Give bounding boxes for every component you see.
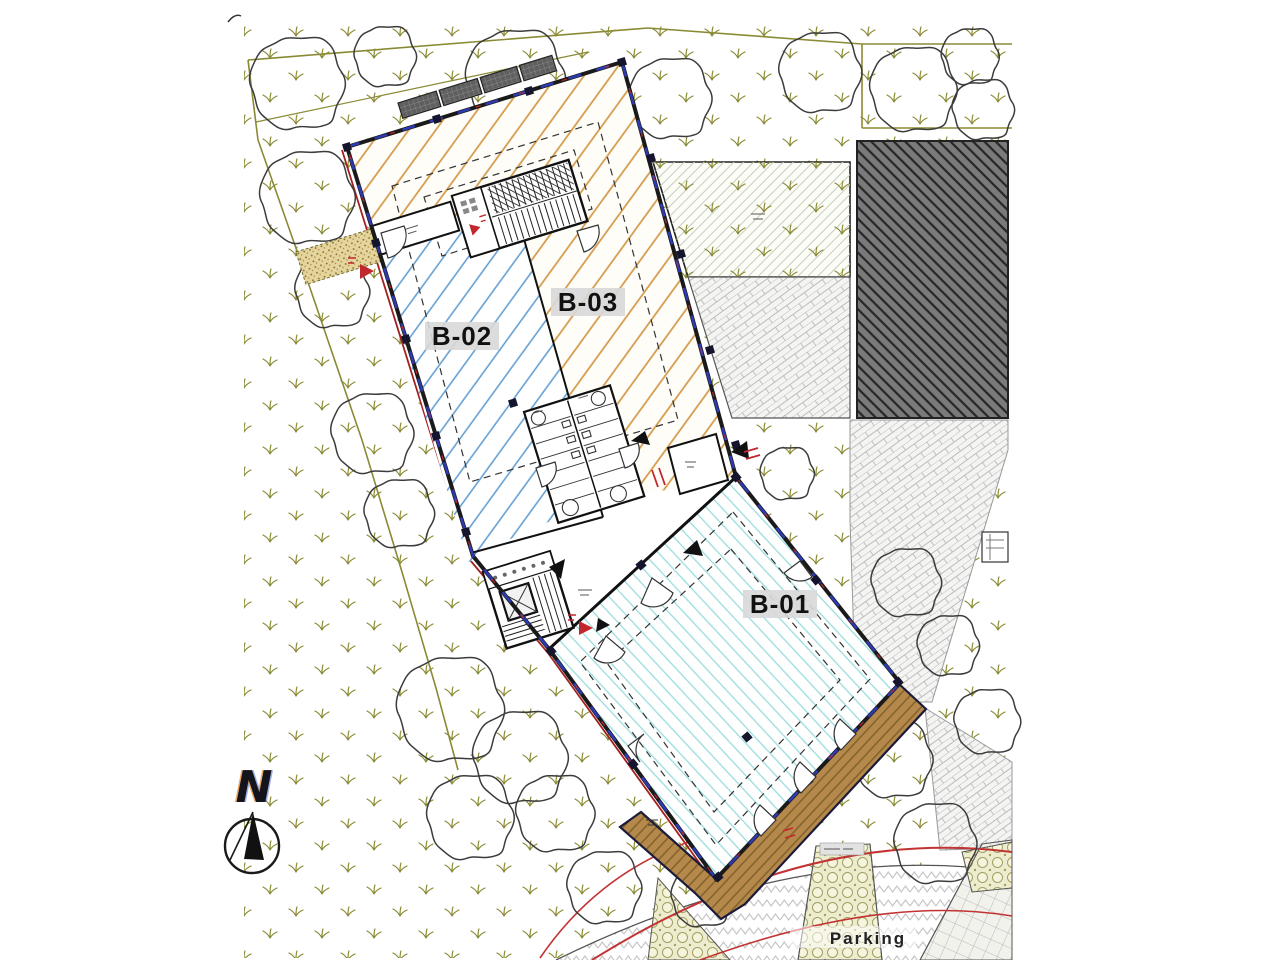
unit-label-b01: B-01 [750,589,810,619]
existing-building [857,141,1008,418]
site-plan-canvas: Parking [0,0,1280,960]
parking-label: Parking [830,929,906,948]
unit-label-b02: B-02 [432,321,492,351]
unit-label-b03: B-03 [558,287,618,317]
green-space [653,162,850,277]
parking-small-label-box [820,843,864,855]
detail-box [982,532,1008,562]
north-label: N [236,762,273,813]
